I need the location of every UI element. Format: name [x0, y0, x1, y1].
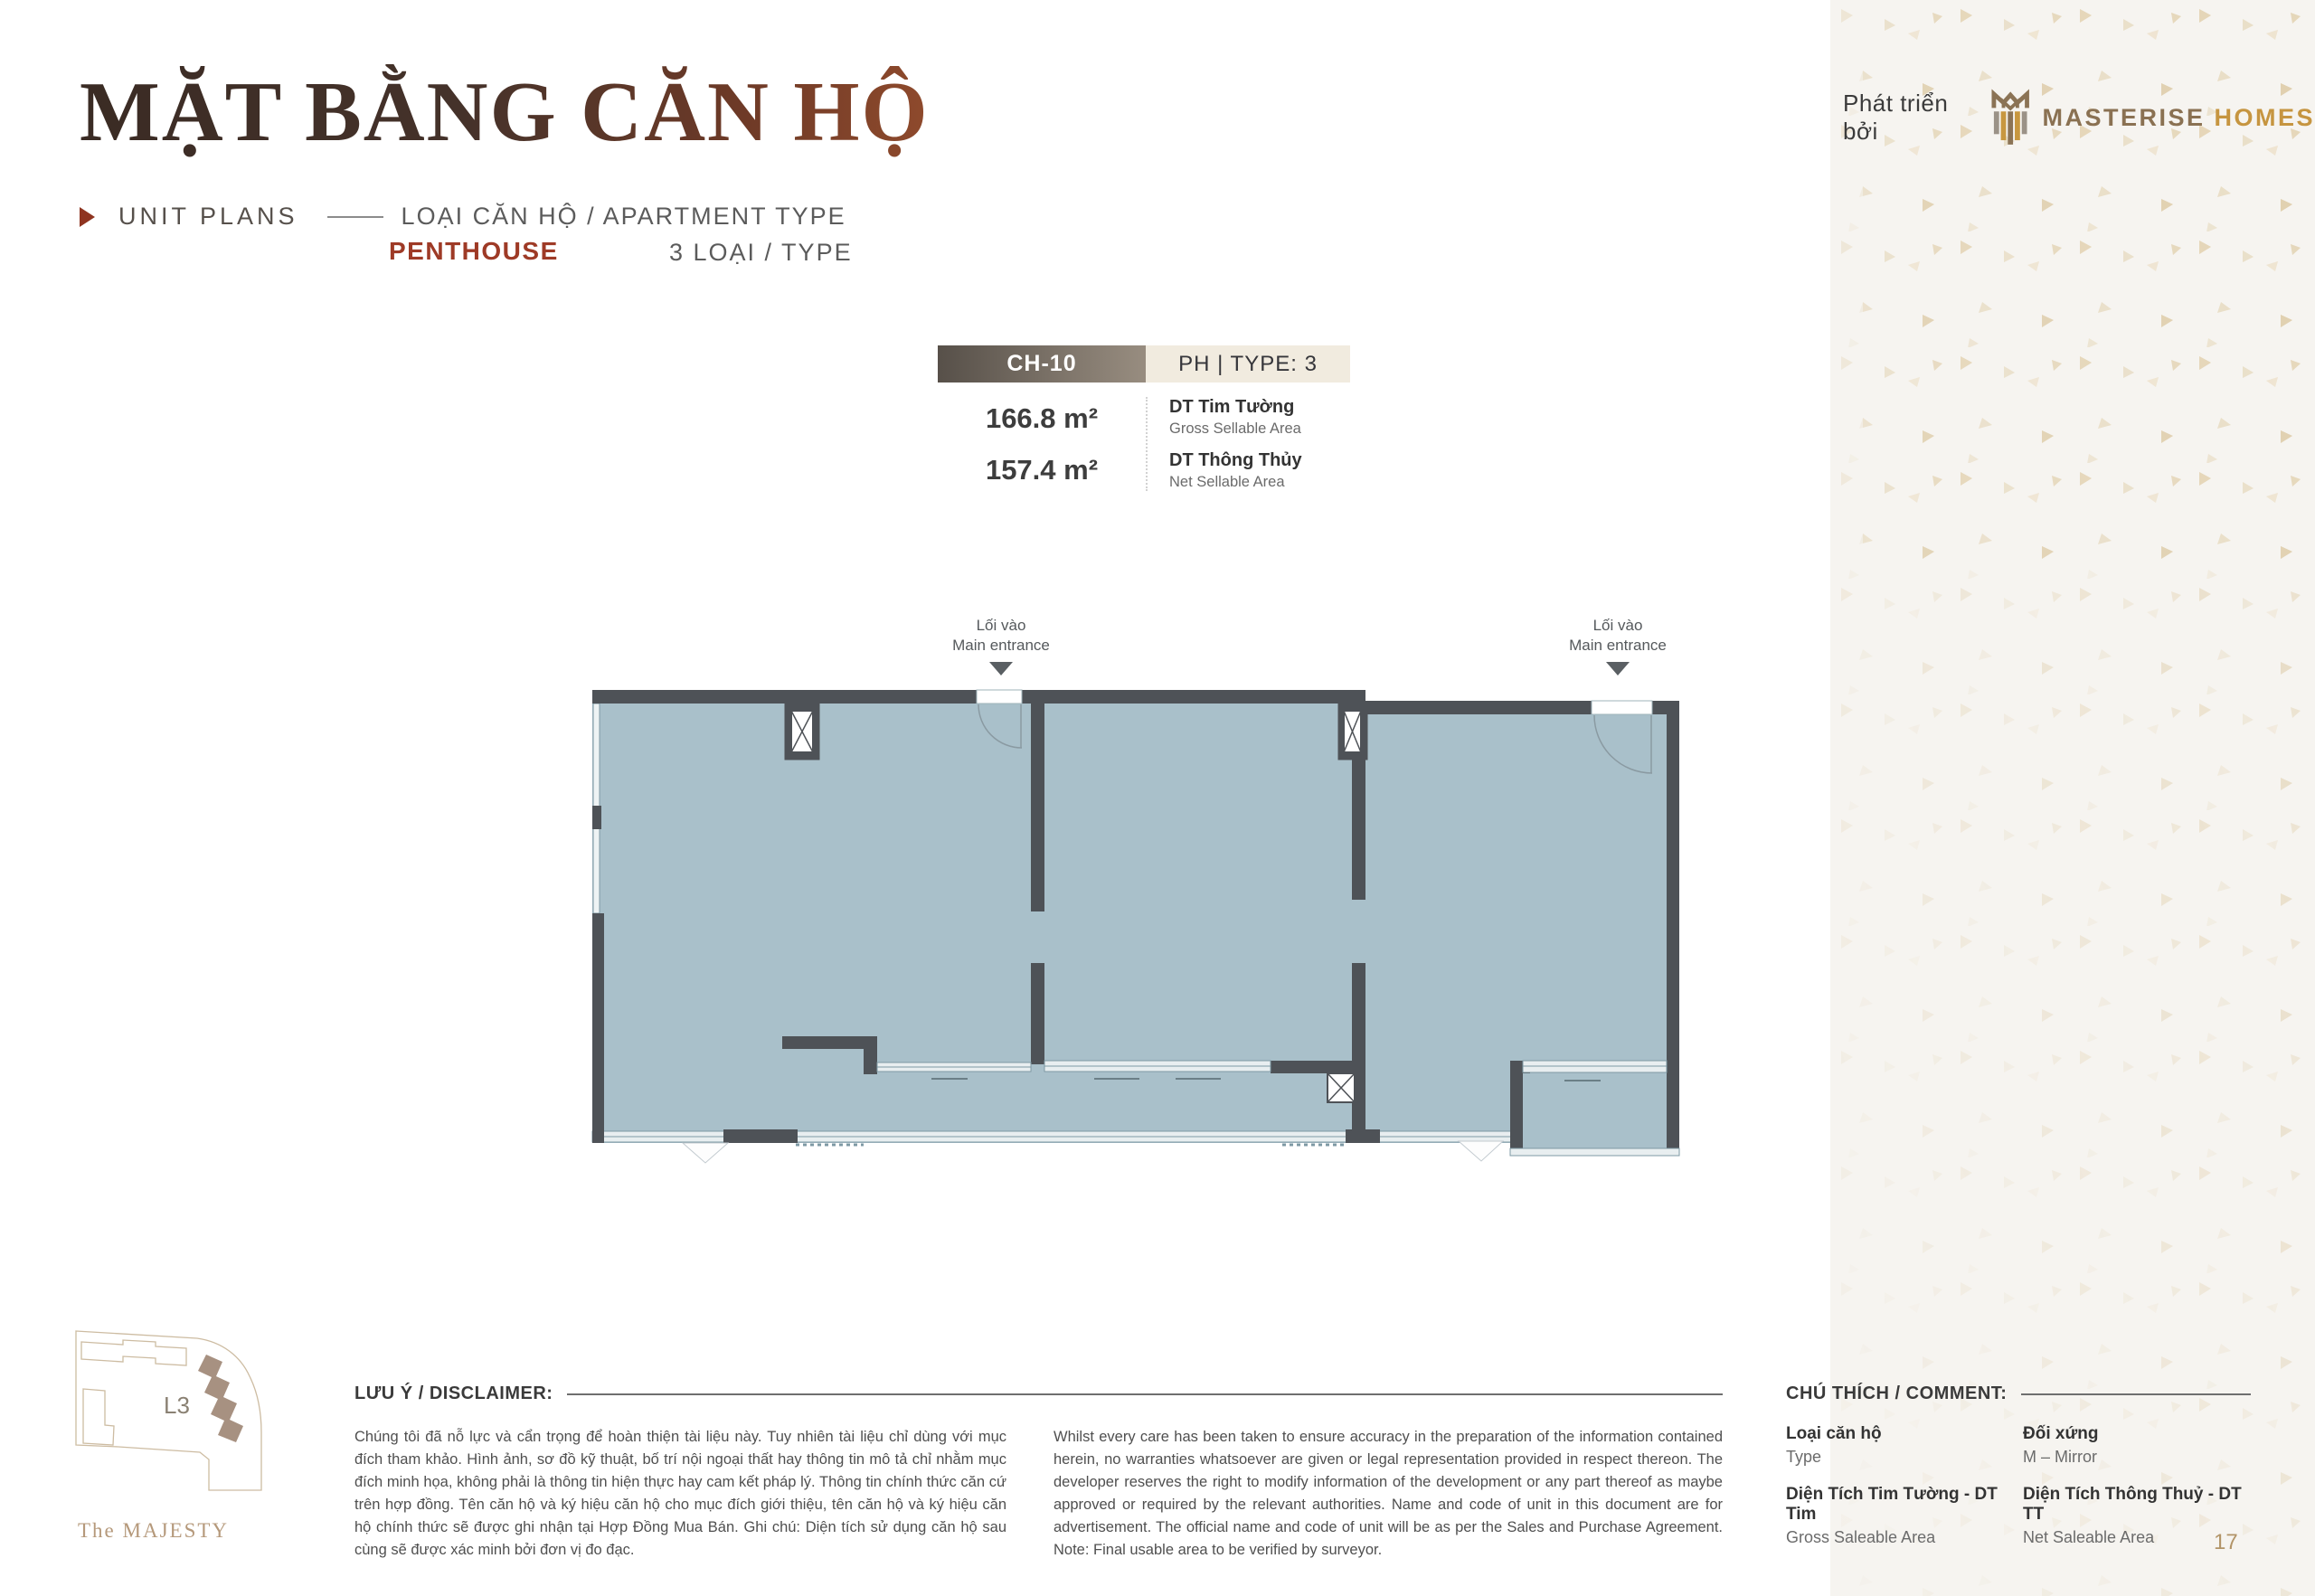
unit-badges: CH-10 PH | TYPE: 3 [938, 345, 1350, 382]
disclaimer-heading: LƯU Ý / DISCLAIMER: [354, 1384, 553, 1404]
net-area-value: 157.4 m² [986, 454, 1098, 486]
net-area-label: DT Thông Thủy Net Sellable Area [1169, 450, 1350, 491]
entrance-arrow-icon [1606, 662, 1630, 675]
subtitle-row: UNIT PLANS LOẠI CĂN HỘ / APARTMENT TYPE [80, 203, 846, 231]
area-values: 166.8 m² 157.4 m² [938, 397, 1146, 491]
brand-homes: HOMES [2214, 104, 2315, 132]
floorplan-svg [588, 683, 1718, 1189]
block-label: L3 [164, 1392, 190, 1419]
disclaimer-columns: Chúng tôi đã nỗ lực và cẩn trọng để hoàn… [354, 1426, 1723, 1562]
unit-areas: 166.8 m² 157.4 m² DT Tim Tường Gross Sel… [938, 397, 1350, 491]
entrance-label-2: Lối vào Main entrance [1541, 616, 1695, 675]
subtitle-divider [327, 216, 383, 218]
gross-area-label: DT Tim Tường Gross Sellable Area [1169, 397, 1350, 438]
developer-row: Phát triển bởi MASTERISE HOMES [1843, 89, 2315, 146]
gross-area-value: 166.8 m² [986, 402, 1098, 435]
legend-header: CHÚ THÍCH / COMMENT: [1786, 1384, 2251, 1404]
disclaimer-text-vi: Chúng tôi đã nỗ lực và cẩn trọng để hoàn… [354, 1426, 1006, 1562]
page-number: 17 [2214, 1530, 2238, 1555]
confetti-strip [1830, 0, 2315, 1596]
legend-item: Diện Tích Tim Tường - DT Tim Gross Salea… [1786, 1485, 2023, 1547]
disclaimer-section: LƯU Ý / DISCLAIMER: Chúng tôi đã nỗ lực … [354, 1384, 1723, 1562]
bullet-triangle-icon [80, 207, 95, 227]
unit-code-badge: CH-10 [938, 345, 1146, 382]
unit-type-badge: PH | TYPE: 3 [1146, 345, 1350, 382]
brand-masterise: MASTERISE [2042, 104, 2205, 132]
disclaimer-header: LƯU Ý / DISCLAIMER: [354, 1384, 1723, 1404]
type-name-label: PENTHOUSE [389, 237, 559, 266]
project-name: The MAJESTY [78, 1519, 229, 1543]
brochure-page: Phát triển bởi MASTERISE HOMES MẶT BẰNG … [0, 0, 2315, 1596]
page-title: MẶT BẰNG CĂN HỘ [80, 63, 930, 161]
legend-item: Loại căn hộ Type [1786, 1424, 2023, 1467]
highlighted-building [198, 1355, 243, 1442]
area-labels: DT Tim Tường Gross Sellable Area DT Thôn… [1146, 397, 1350, 491]
confetti-pattern-graphic [1830, 0, 2315, 1596]
site-key-plan-svg: L3 [69, 1318, 295, 1504]
disclaimer-rule [567, 1393, 1723, 1395]
legend-section: CHÚ THÍCH / COMMENT: Loại căn hộ Type Đố… [1786, 1384, 2251, 1547]
legend-item: Đối xứng M – Mirror [2023, 1424, 2251, 1467]
brand-wordmark: MASTERISE HOMES [2042, 104, 2315, 132]
entrance-arrow-icon [989, 662, 1013, 675]
site-key-plan: L3 [69, 1318, 295, 1508]
entrance-label-1: Lối vào Main entrance [924, 616, 1078, 675]
legend-grid: Loại căn hộ Type Đối xứng M – Mirror Diệ… [1786, 1424, 2251, 1547]
developer-prefix: Phát triển bởi [1843, 90, 1979, 146]
legend-rule [2021, 1393, 2251, 1395]
unit-info-card: CH-10 PH | TYPE: 3 166.8 m² 157.4 m² DT … [938, 345, 1350, 491]
legend-heading: CHÚ THÍCH / COMMENT: [1786, 1384, 2007, 1404]
floorplan-drawing [588, 683, 1718, 1189]
masterise-logo-icon [1991, 89, 2029, 146]
disclaimer-text-en: Whilst every care has been taken to ensu… [1054, 1426, 1723, 1562]
unit-plans-label: UNIT PLANS [118, 203, 298, 231]
apartment-type-label: LOẠI CĂN HỘ / APARTMENT TYPE [402, 203, 846, 231]
type-count-label: 3 LOẠI / TYPE [669, 239, 853, 267]
